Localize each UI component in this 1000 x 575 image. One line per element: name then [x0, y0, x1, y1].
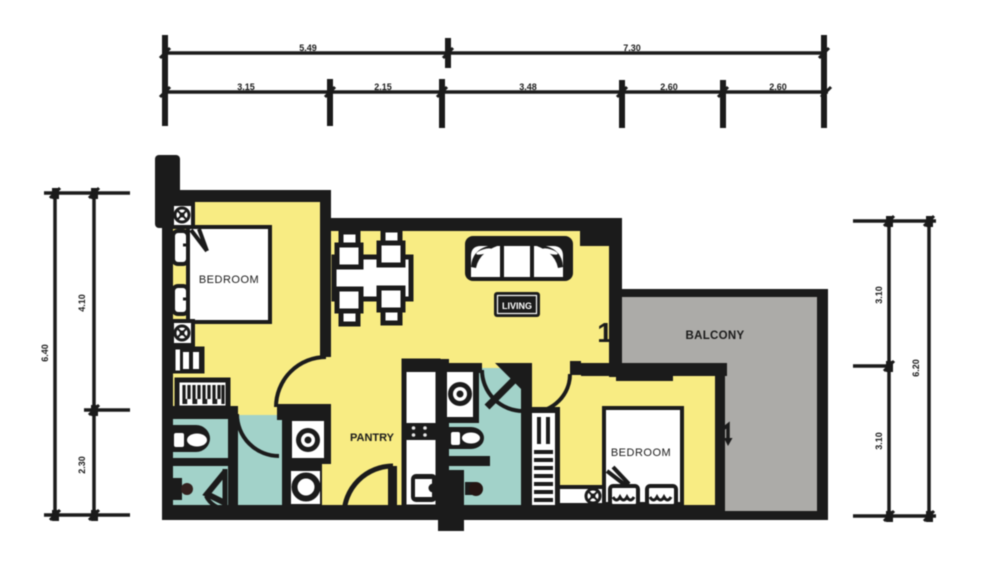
svg-text:BEDROOM: BEDROOM [611, 447, 671, 459]
svg-text:7.30: 7.30 [623, 43, 641, 53]
svg-text:3.10: 3.10 [874, 432, 884, 450]
svg-text:2.15: 2.15 [374, 82, 392, 92]
svg-text:PANTRY: PANTRY [350, 432, 395, 444]
svg-text:3.10: 3.10 [874, 286, 884, 304]
svg-text:2.30: 2.30 [77, 456, 87, 474]
svg-text:6.20: 6.20 [911, 359, 921, 377]
svg-text:3.48: 3.48 [519, 82, 537, 92]
svg-text:LIVING: LIVING [502, 301, 532, 311]
svg-text:3.15: 3.15 [237, 82, 255, 92]
svg-text:5.49: 5.49 [299, 43, 317, 53]
svg-text:2.60: 2.60 [769, 82, 787, 92]
svg-text:2.60: 2.60 [660, 82, 678, 92]
svg-text:BEDROOM: BEDROOM [199, 274, 259, 286]
svg-text:6.40: 6.40 [40, 344, 50, 362]
svg-text:1: 1 [597, 317, 613, 348]
svg-text:BALCONY: BALCONY [686, 330, 745, 342]
svg-text:4.10: 4.10 [77, 294, 87, 312]
